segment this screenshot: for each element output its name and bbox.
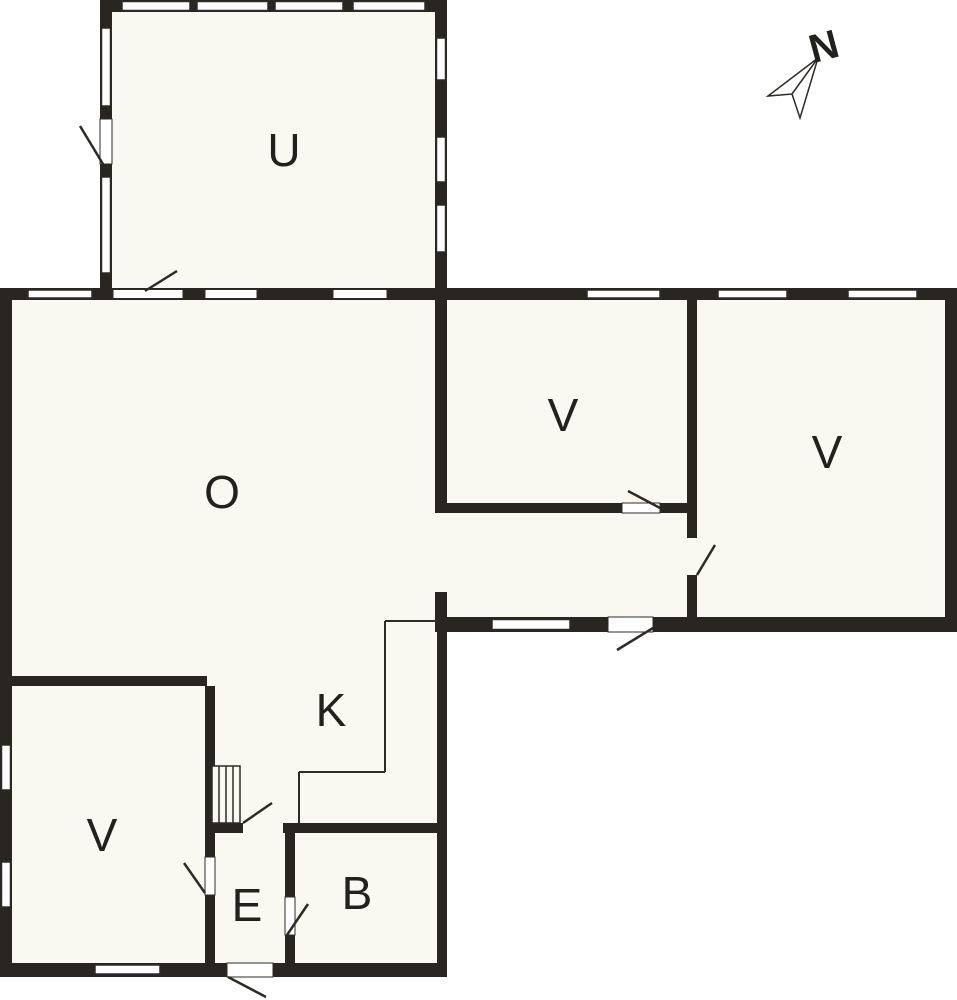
door-opening	[205, 857, 215, 895]
wall	[12, 676, 207, 686]
floor-plan: UOVVKVEBN	[0, 0, 957, 1000]
window	[197, 2, 268, 11]
door-opening	[227, 963, 273, 977]
wall	[205, 823, 243, 833]
window	[275, 2, 343, 11]
door-swing	[228, 977, 266, 997]
north-needle-icon	[768, 58, 818, 118]
window	[95, 965, 160, 974]
wall	[435, 300, 447, 513]
window	[122, 2, 190, 11]
window	[2, 745, 11, 790]
window	[437, 205, 446, 252]
window	[492, 620, 570, 630]
wall	[437, 632, 447, 977]
room-label-u: U	[267, 124, 300, 176]
room-label-e: E	[232, 879, 263, 931]
window	[2, 862, 11, 907]
wall	[945, 288, 957, 632]
door-opening	[100, 119, 112, 164]
floor-area	[447, 288, 957, 632]
window	[102, 28, 111, 106]
wall	[687, 300, 697, 538]
window	[437, 38, 446, 80]
room-label-b: B	[342, 867, 373, 919]
window	[848, 290, 917, 298]
window	[28, 290, 92, 298]
wall	[283, 823, 447, 833]
room-label-v-east: V	[812, 426, 843, 478]
window	[587, 290, 660, 298]
door-opening	[113, 290, 183, 299]
floor-plan-svg: UOVVKVEBN	[0, 0, 957, 1000]
window	[102, 177, 111, 273]
room-label-k: K	[316, 684, 347, 736]
room-label-v-south: V	[87, 809, 118, 861]
window	[437, 137, 446, 182]
wall	[0, 963, 447, 977]
window	[353, 2, 425, 11]
door-opening	[333, 290, 387, 299]
window	[718, 290, 787, 298]
door-opening	[608, 617, 653, 632]
room-label-o: O	[204, 466, 240, 518]
floor-area	[0, 288, 447, 977]
room-label-v-middle: V	[548, 389, 579, 441]
door-opening	[205, 290, 257, 299]
